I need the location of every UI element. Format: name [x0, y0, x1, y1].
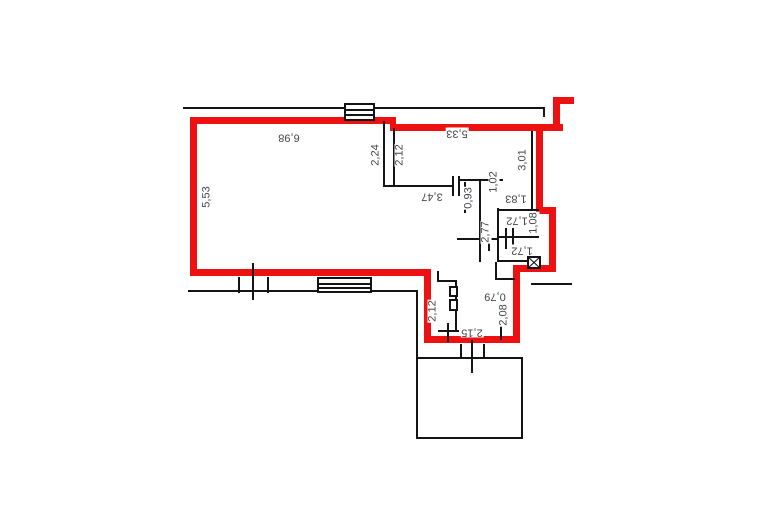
interior-wall: [383, 185, 454, 187]
dimension-label: 0,93: [464, 186, 475, 209]
window-symbol-bottom: [317, 277, 372, 293]
stair-door-tick-1: [460, 344, 462, 358]
exterior-left-stair-line: [416, 290, 418, 359]
dimension-label: 2,12: [428, 299, 439, 322]
outline-right-wall-lower: [549, 207, 556, 272]
dimension-label: 6,98: [277, 132, 300, 143]
interior-wall: [437, 280, 457, 282]
interior-wall: [531, 131, 533, 211]
window-bar: [346, 109, 373, 111]
window-bar: [346, 114, 373, 116]
door-tick: [505, 228, 507, 249]
dimension-label: 2,15: [460, 327, 483, 338]
door-tick: [452, 176, 454, 196]
vent-shaft-symbol: [527, 256, 541, 269]
door-jamb: [449, 299, 458, 311]
entry-door-tick-1: [238, 277, 240, 293]
dimension-label: 3,01: [518, 148, 529, 171]
dimension-label: 5,53: [202, 185, 213, 208]
stair-door-tick-2: [471, 340, 473, 373]
dimension-label: 5,33: [445, 128, 468, 139]
neighbor-wall-line: [531, 283, 572, 285]
outline-right-wall-upper: [536, 124, 543, 214]
dimension-label: 1,02: [489, 170, 500, 193]
interior-wall: [497, 260, 528, 262]
vent-shaft-cross: [529, 258, 539, 267]
interior-wall: [497, 208, 499, 262]
stair-door-tick-3: [483, 344, 485, 358]
window-symbol-top: [344, 103, 375, 121]
exterior-bottom-line: [188, 290, 418, 292]
outline-bottom-wall: [190, 269, 431, 276]
door-tick: [447, 323, 449, 342]
interior-wall: [497, 236, 539, 238]
floor-plan: 6,985,532,242,125,333,013,471,020,931,83…: [0, 0, 770, 510]
dimension-label: 1,72: [510, 245, 533, 256]
dimension-label: 1,08: [529, 211, 540, 234]
entry-door-tick-2: [252, 263, 254, 300]
stairwell-block: [416, 357, 523, 439]
dimension-label: 2,77: [481, 220, 492, 243]
dimension-label: 1,83: [504, 193, 527, 204]
dimension-label: 1,72: [505, 215, 528, 226]
window-bar: [319, 287, 370, 289]
outline-left-wall: [190, 117, 197, 276]
exterior-top-line-hook: [543, 107, 545, 117]
entry-door-tick-3: [267, 277, 269, 293]
interior-wall: [495, 278, 515, 280]
window-bar: [319, 283, 370, 285]
dimension-label: 2,08: [499, 303, 510, 326]
dimension-label: 0,79: [483, 291, 506, 302]
dimension-label: 2,24: [371, 143, 382, 166]
dimension-label: 3,47: [420, 191, 443, 202]
interior-wall: [383, 121, 385, 187]
outline-pocket-right-wall: [513, 265, 520, 343]
door-jamb: [449, 286, 458, 297]
outline-top-stub-horizontal: [553, 97, 574, 104]
dimension-label: 2,12: [395, 143, 406, 166]
interior-wall: [437, 271, 439, 281]
